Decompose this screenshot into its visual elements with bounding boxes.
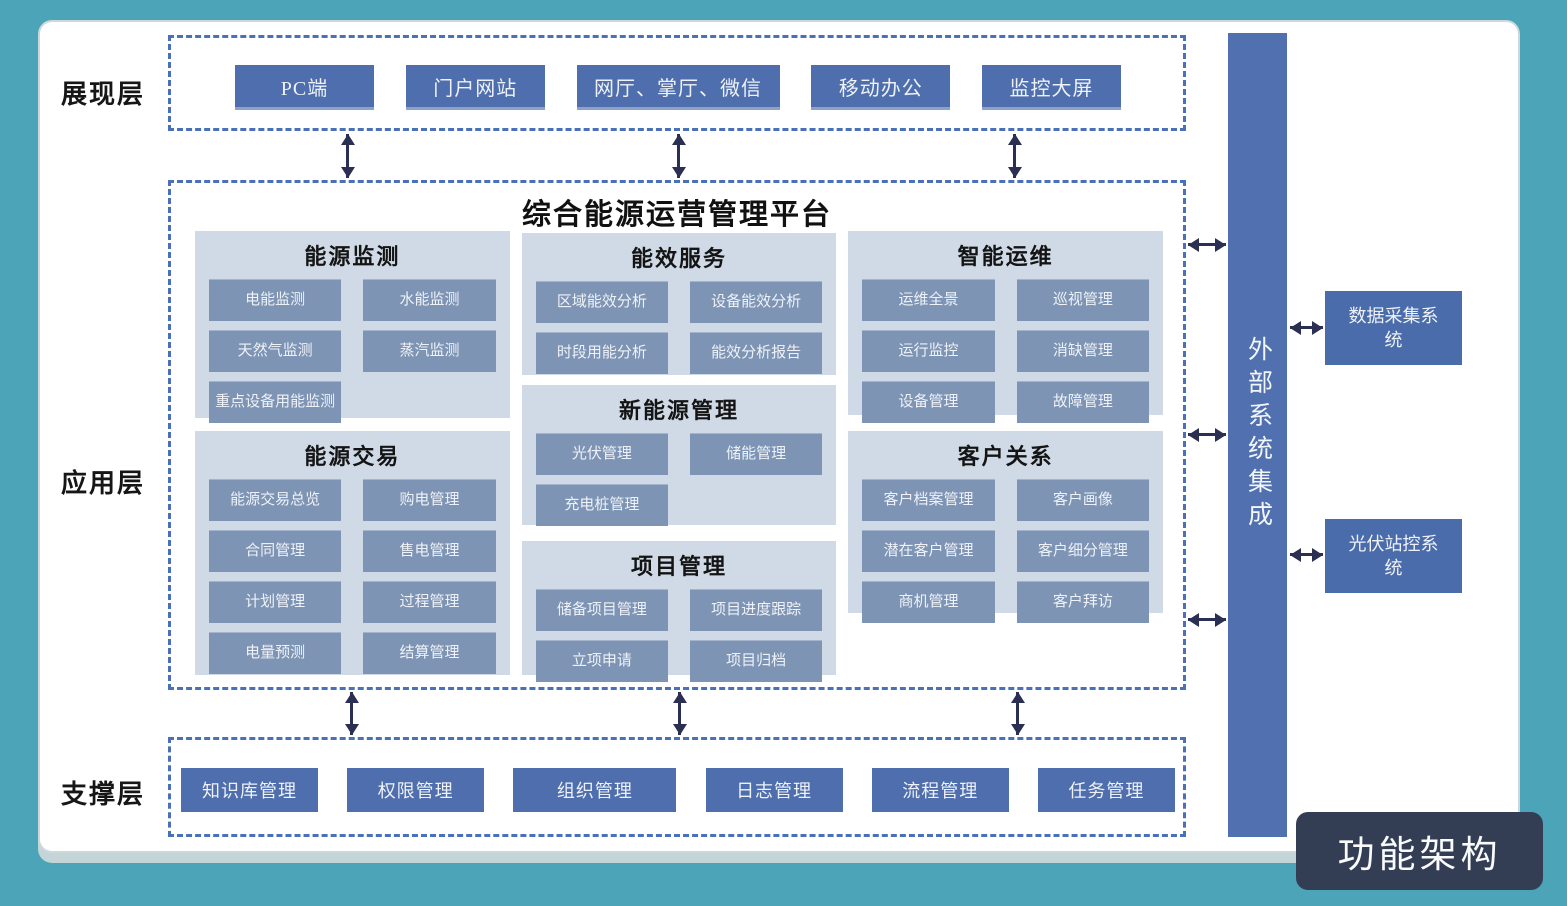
module-item: 电能监测 <box>209 279 341 321</box>
module-item: 项目进度跟踪 <box>690 589 822 631</box>
platform-title: 综合能源运营管理平台 <box>171 191 1183 233</box>
module-item: 合同管理 <box>209 530 341 572</box>
application-column-2: 能效服务 区域能效分析 设备能效分析 时段用能分析 能效分析报告 新能源管理 光… <box>522 231 837 675</box>
module-item: 区域能效分析 <box>536 281 668 323</box>
module-item: 储能管理 <box>690 433 822 475</box>
double-arrow-icon <box>677 134 680 178</box>
double-arrow-icon <box>1188 433 1226 436</box>
double-arrow-icon <box>346 134 349 178</box>
presentation-layer-label: 展现层 <box>48 74 158 111</box>
presentation-items-row: PC端 门户网站 网厅、掌厅、微信 移动办公 监控大屏 <box>235 65 1121 110</box>
module-item: 商机管理 <box>862 581 994 623</box>
double-arrow-icon <box>1188 243 1226 246</box>
support-box-task: 任务管理 <box>1038 768 1175 812</box>
module-item: 故障管理 <box>1017 381 1149 423</box>
support-box-log: 日志管理 <box>706 768 843 812</box>
group-energy-monitoring: 能源监测 电能监测 水能监测 天然气监测 蒸汽监测 重点设备用能监测 <box>195 231 510 418</box>
architecture-diagram: 展现层 应用层 支撑层 PC端 门户网站 网厅、掌厅、微信 移动办公 监控大屏 … <box>0 0 1567 906</box>
presentation-box-mobile: 移动办公 <box>811 65 950 110</box>
group-title: 能源监测 <box>209 239 496 271</box>
module-item: 客户档案管理 <box>862 479 994 521</box>
module-item: 客户细分管理 <box>1017 530 1149 572</box>
module-item: 运行监控 <box>862 330 994 372</box>
external-system-pv-station: 光伏站控系统 <box>1325 519 1462 593</box>
group-smart-ops: 智能运维 运维全景 巡视管理 运行监控 消缺管理 设备管理 故障管理 <box>848 231 1163 415</box>
presentation-box-portal: 门户网站 <box>406 65 545 110</box>
presentation-layer-box: PC端 门户网站 网厅、掌厅、微信 移动办公 监控大屏 <box>168 35 1186 131</box>
module-item: 设备管理 <box>862 381 994 423</box>
double-arrow-icon <box>1016 692 1019 735</box>
group-customer-relations: 客户关系 客户档案管理 客户画像 潜在客户管理 客户细分管理 商机管理 客户拜访 <box>848 431 1163 613</box>
support-layer-label: 支撑层 <box>48 774 158 811</box>
external-system-integration-bar: 外部系统集成 <box>1228 33 1287 837</box>
presentation-box-bigscreen: 监控大屏 <box>982 65 1121 110</box>
module-item: 能源交易总览 <box>209 479 341 521</box>
module-item: 潜在客户管理 <box>862 530 994 572</box>
application-column-1: 能源监测 电能监测 水能监测 天然气监测 蒸汽监测 重点设备用能监测 能源交易 … <box>195 231 510 675</box>
module-item: 计划管理 <box>209 581 341 623</box>
group-energy-trading: 能源交易 能源交易总览 购电管理 合同管理 售电管理 计划管理 过程管理 电量预… <box>195 431 510 675</box>
module-item: 消缺管理 <box>1017 330 1149 372</box>
module-item: 能效分析报告 <box>690 332 822 374</box>
module-item: 立项申请 <box>536 640 668 682</box>
group-title: 能效服务 <box>536 241 823 273</box>
double-arrow-icon <box>1290 326 1323 329</box>
group-title: 智能运维 <box>862 239 1149 271</box>
module-item: 设备能效分析 <box>690 281 822 323</box>
group-title: 客户关系 <box>862 439 1149 471</box>
application-column-3: 智能运维 运维全景 巡视管理 运行监控 消缺管理 设备管理 故障管理 客户关系 … <box>848 231 1163 675</box>
module-item: 过程管理 <box>363 581 495 623</box>
module-item: 巡视管理 <box>1017 279 1149 321</box>
module-item: 客户拜访 <box>1017 581 1149 623</box>
external-system-data-collection: 数据采集系统 <box>1325 291 1462 365</box>
diagram-type-badge: 功能架构 <box>1296 812 1543 890</box>
support-box-knowledge: 知识库管理 <box>181 768 318 812</box>
module-item: 天然气监测 <box>209 330 341 372</box>
group-title: 新能源管理 <box>536 393 823 425</box>
module-item: 售电管理 <box>363 530 495 572</box>
double-arrow-icon <box>350 692 353 735</box>
group-new-energy: 新能源管理 光伏管理 储能管理 充电桩管理 <box>522 385 837 525</box>
module-item: 项目归档 <box>690 640 822 682</box>
double-arrow-icon <box>678 692 681 735</box>
support-layer-box: 知识库管理 权限管理 组织管理 日志管理 流程管理 任务管理 <box>168 737 1186 837</box>
presentation-box-pc: PC端 <box>235 65 374 110</box>
support-items-row: 知识库管理 权限管理 组织管理 日志管理 流程管理 任务管理 <box>181 768 1175 812</box>
application-columns: 能源监测 电能监测 水能监测 天然气监测 蒸汽监测 重点设备用能监测 能源交易 … <box>195 231 1163 675</box>
double-arrow-icon <box>1188 618 1226 621</box>
module-item: 时段用能分析 <box>536 332 668 374</box>
module-item: 水能监测 <box>363 279 495 321</box>
module-item: 运维全景 <box>862 279 994 321</box>
application-layer-box: 综合能源运营管理平台 能源监测 电能监测 水能监测 天然气监测 蒸汽监测 重点设… <box>168 180 1186 690</box>
double-arrow-icon <box>1290 553 1323 556</box>
module-item: 电量预测 <box>209 632 341 674</box>
presentation-box-channels: 网厅、掌厅、微信 <box>577 65 780 110</box>
group-title: 能源交易 <box>209 439 496 471</box>
support-box-permission: 权限管理 <box>347 768 484 812</box>
module-item: 重点设备用能监测 <box>209 381 341 423</box>
support-box-process: 流程管理 <box>872 768 1009 812</box>
application-layer-label: 应用层 <box>48 463 158 500</box>
double-arrow-icon <box>1013 134 1016 178</box>
module-item: 结算管理 <box>363 632 495 674</box>
module-item: 蒸汽监测 <box>363 330 495 372</box>
module-item: 光伏管理 <box>536 433 668 475</box>
support-box-organization: 组织管理 <box>513 768 676 812</box>
group-title: 项目管理 <box>536 549 823 581</box>
module-item: 储备项目管理 <box>536 589 668 631</box>
module-item: 购电管理 <box>363 479 495 521</box>
group-energy-efficiency: 能效服务 区域能效分析 设备能效分析 时段用能分析 能效分析报告 <box>522 233 837 375</box>
module-item: 客户画像 <box>1017 479 1149 521</box>
group-project-management: 项目管理 储备项目管理 项目进度跟踪 立项申请 项目归档 <box>522 541 837 675</box>
module-item: 充电桩管理 <box>536 484 668 526</box>
